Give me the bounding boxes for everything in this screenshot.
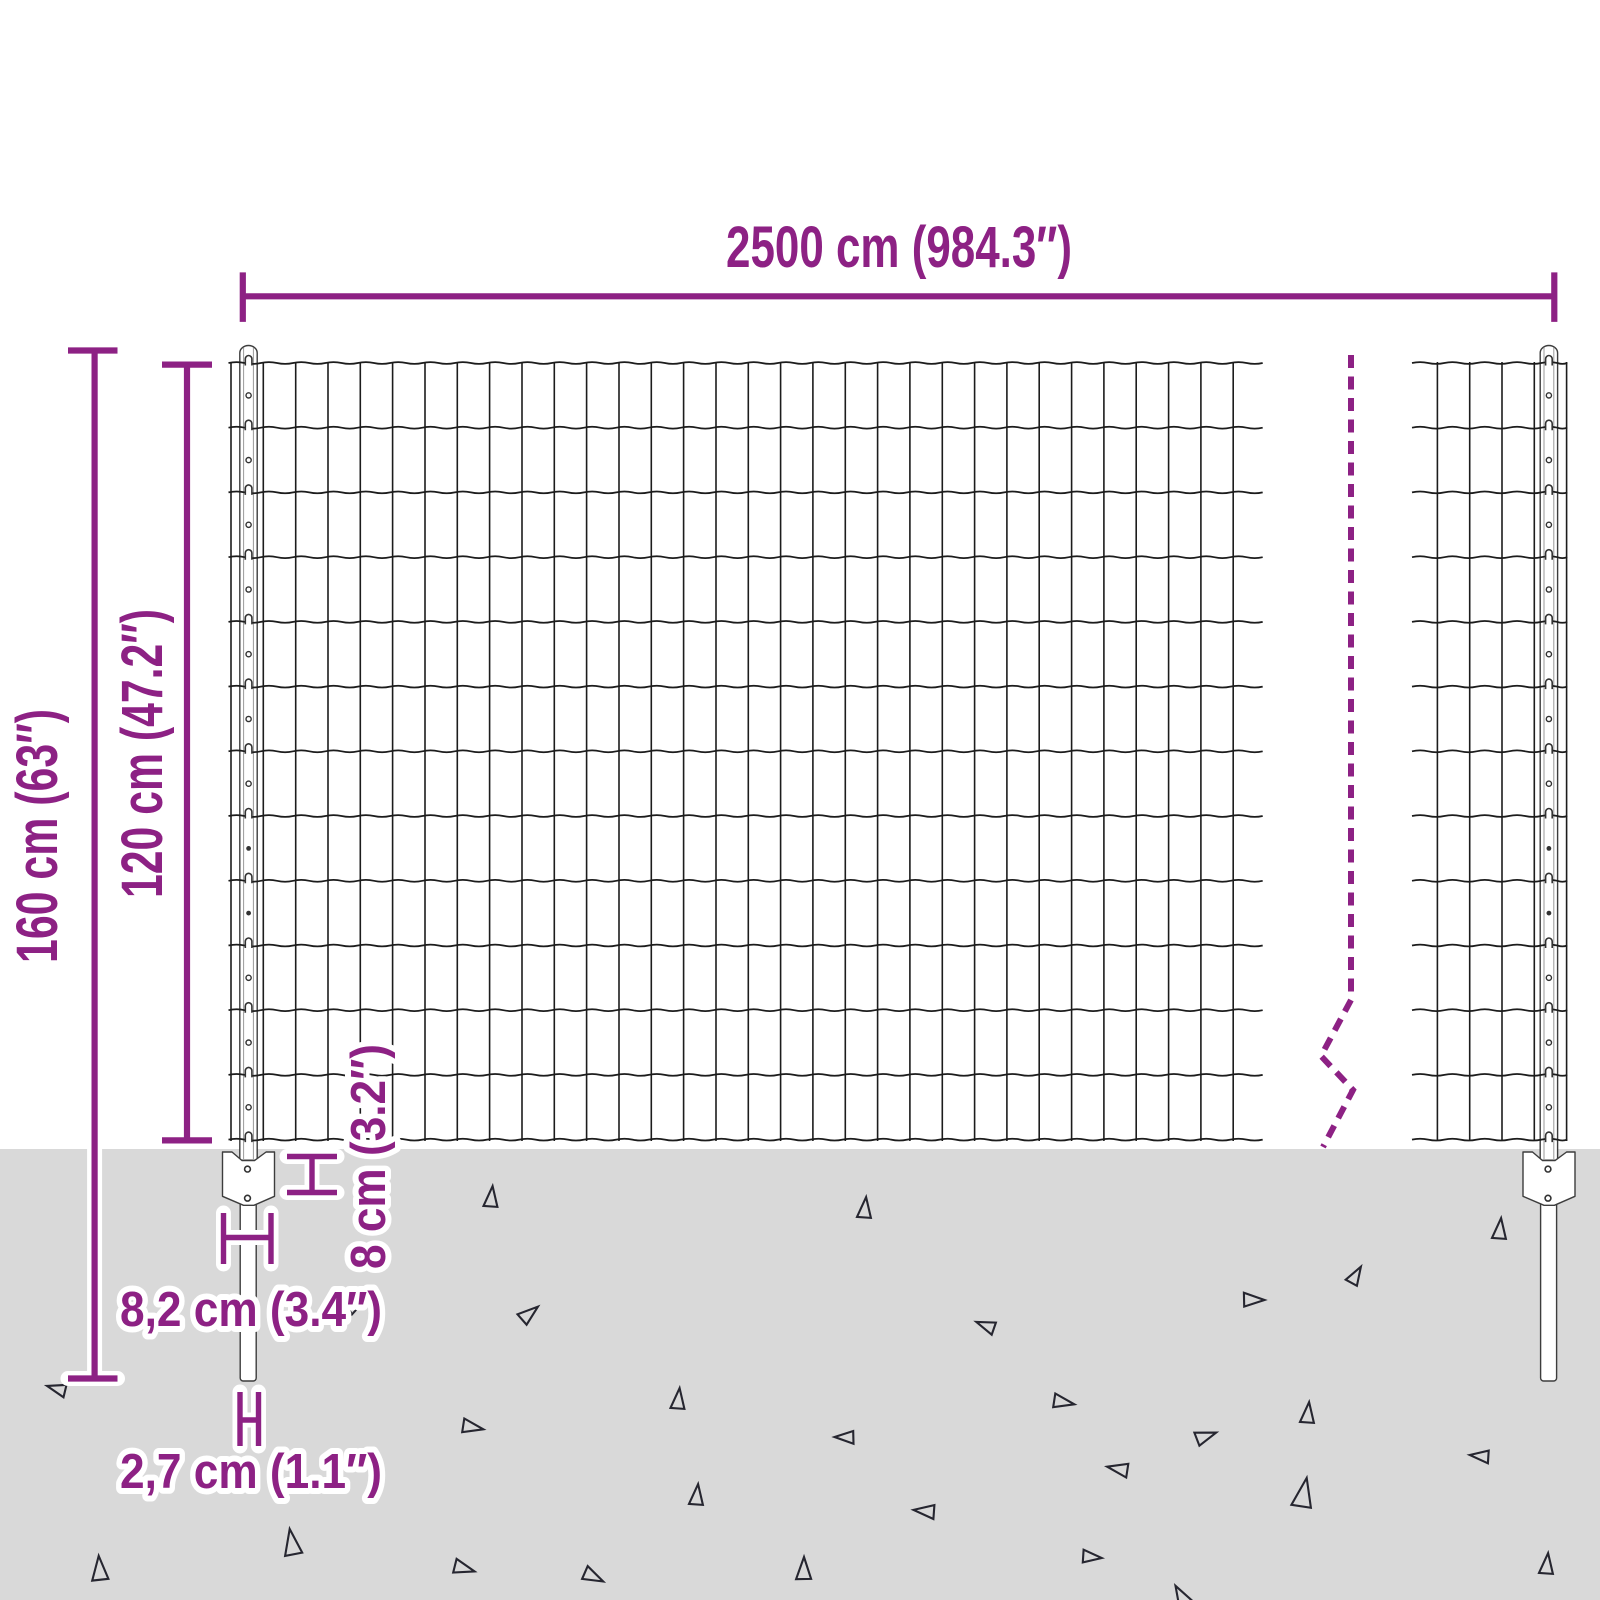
svg-text:2500 cm (984.3″): 2500 cm (984.3″) [726, 215, 1072, 280]
svg-text:160 cm (63″): 160 cm (63″) [5, 709, 70, 963]
svg-text:8,2 cm (3.4″): 8,2 cm (3.4″) [120, 1283, 382, 1337]
svg-text:2,7 cm (1.1″): 2,7 cm (1.1″) [120, 1445, 382, 1499]
svg-text:120 cm (47.2″): 120 cm (47.2″) [110, 609, 175, 898]
svg-text:8 cm (3.2″): 8 cm (3.2″) [342, 1044, 396, 1269]
